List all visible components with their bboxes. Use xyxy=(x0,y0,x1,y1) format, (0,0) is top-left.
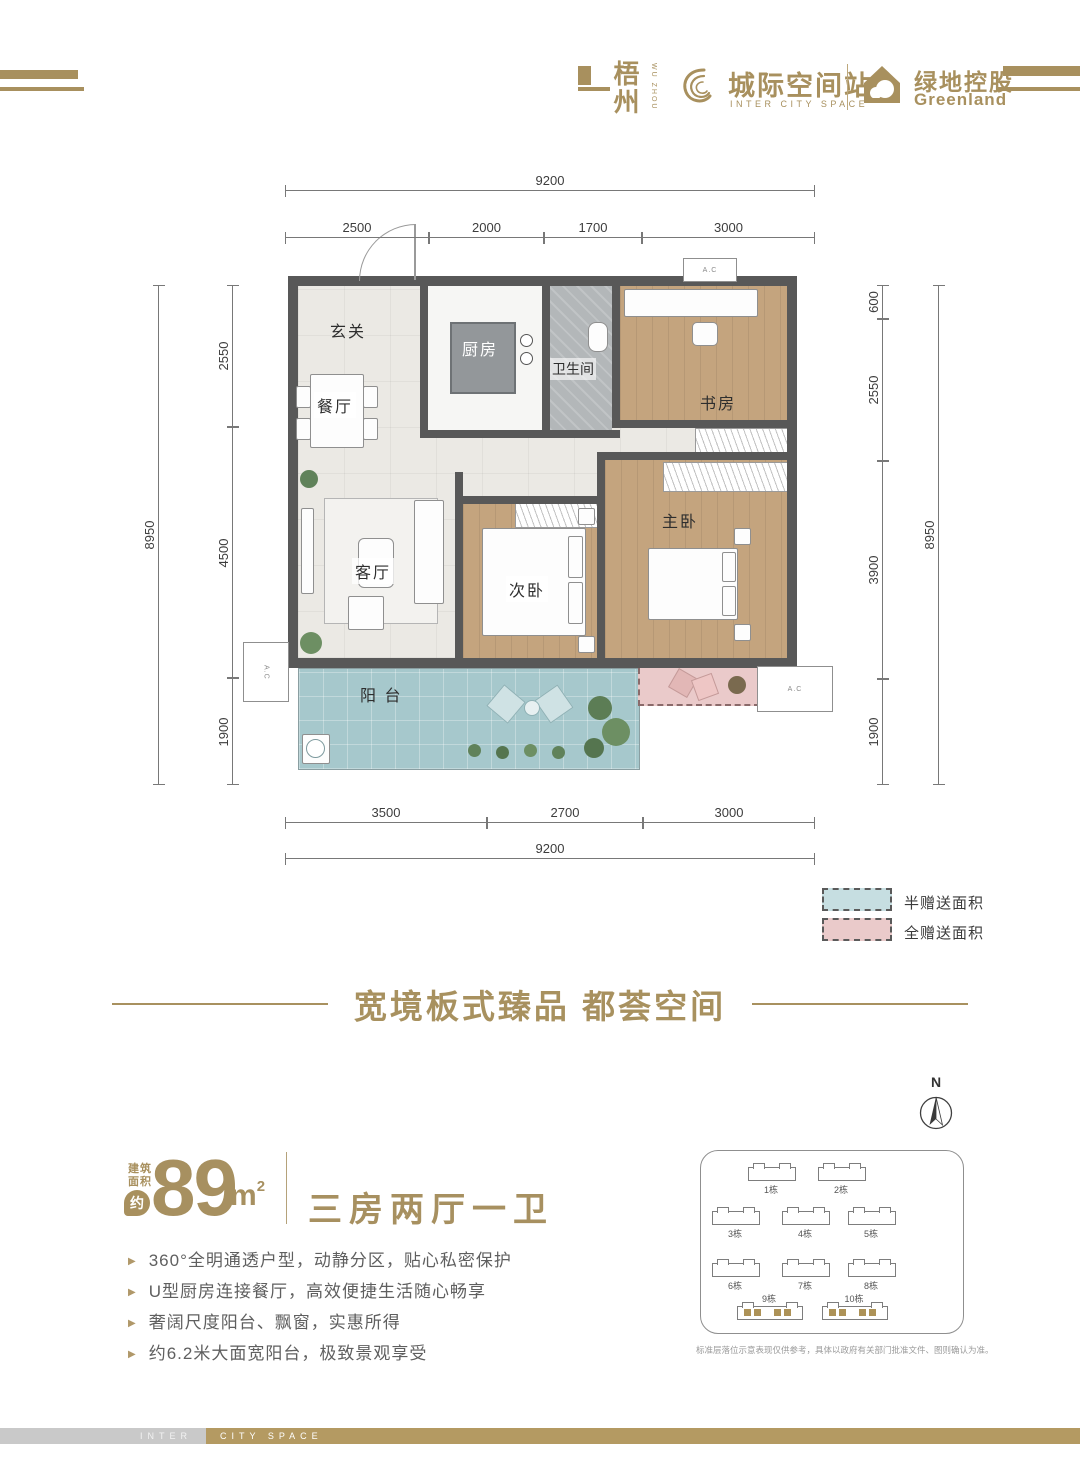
wall-study-bottom xyxy=(612,420,797,428)
wall-bed2-top xyxy=(463,496,605,504)
building-label: 1栋 xyxy=(748,1183,794,1196)
unit-divider xyxy=(286,1152,287,1224)
greenland-house-icon xyxy=(858,62,906,108)
wall-left xyxy=(288,276,298,668)
headline-text: 宽境板式臻品 都荟空间 xyxy=(354,980,726,1028)
feature-item: 360°全明通透户型，动静分区，贴心私密保护 xyxy=(128,1246,512,1271)
gift-unit-marker xyxy=(859,1309,866,1316)
gift-unit-marker xyxy=(744,1309,751,1316)
plant xyxy=(468,744,481,757)
deco-bar-right-thin xyxy=(997,87,1080,91)
header: 梧州 WU ZHOU 城际空间站 INTER CITY SPACE 绿地控股 G… xyxy=(0,0,1080,140)
city-logo: 梧州 xyxy=(611,60,643,122)
building-label: 2栋 xyxy=(818,1183,864,1196)
area-value: 89 xyxy=(151,1148,236,1228)
building-8 xyxy=(848,1263,896,1277)
unit-m: m xyxy=(230,1179,257,1212)
master-pillow xyxy=(722,552,736,582)
dim-top-total: 9200 xyxy=(285,190,815,191)
feature-item: U型厨房连接餐厅，高效便捷生活随心畅享 xyxy=(128,1277,486,1302)
dim-value: 3900 xyxy=(866,540,882,600)
dining-chair xyxy=(296,386,311,408)
dim-value: 1700 xyxy=(544,220,642,235)
dim-value: 3500 xyxy=(285,805,487,820)
wall-right xyxy=(787,276,797,668)
building-7 xyxy=(782,1263,830,1277)
ac-label: A.C xyxy=(703,267,718,274)
bed2-pillow xyxy=(568,536,583,578)
wall-bath-study xyxy=(612,286,620,428)
ac-label: A.C xyxy=(263,665,270,680)
deco-bar-left-thin xyxy=(0,87,84,91)
nightstand xyxy=(734,624,751,641)
wall-master-top xyxy=(605,452,797,460)
dim-value: 1900 xyxy=(866,702,882,762)
swirl-icon xyxy=(674,64,722,112)
building-label: 5栋 xyxy=(848,1227,894,1240)
dim-bottom-seg2: 2700 xyxy=(487,822,643,823)
building-label: 6栋 xyxy=(712,1279,758,1292)
dining-chair xyxy=(363,418,378,440)
ac-unit-right: A.C xyxy=(757,666,833,712)
headline-rule-left xyxy=(112,1003,328,1005)
building-label: 4栋 xyxy=(782,1227,828,1240)
dim-bottom-seg3: 3000 xyxy=(643,822,815,823)
headline-rule-right xyxy=(752,1003,968,1005)
building-4 xyxy=(782,1211,830,1225)
dining-chair xyxy=(363,386,378,408)
nightstand xyxy=(578,508,595,525)
building-label: 7栋 xyxy=(782,1279,828,1292)
wall-bed2-master xyxy=(597,452,605,668)
building-label: 8栋 xyxy=(848,1279,894,1292)
compass-icon xyxy=(916,1092,956,1132)
dim-value: 2700 xyxy=(487,805,643,820)
wall-living-bed2 xyxy=(455,472,463,668)
dim-top-seg1: 2500 xyxy=(285,237,429,238)
armchair xyxy=(348,596,384,630)
dining-chair xyxy=(296,418,311,440)
legend-swatch-full-gift xyxy=(822,918,892,941)
dim-left-seg3: 1900 xyxy=(232,678,233,785)
room-label-kitchen: 厨房 xyxy=(462,336,498,360)
room-label-foyer: 玄关 xyxy=(330,318,366,342)
gift-unit-marker xyxy=(754,1309,761,1316)
deco-block-prelogo xyxy=(578,66,591,85)
city-logo-sub: WU ZHOU xyxy=(645,63,657,123)
dim-value: 2500 xyxy=(285,220,429,235)
legend-label-full-gift: 全赠送面积 xyxy=(904,922,984,943)
plant xyxy=(602,718,630,746)
area-prefix-2: 面积 xyxy=(128,1173,152,1189)
dim-value: 2550 xyxy=(866,360,882,420)
balcony-table xyxy=(524,700,540,716)
room-label-study: 书房 xyxy=(700,390,736,414)
dim-top-seg2: 2000 xyxy=(429,237,544,238)
ac-unit-left: A.C xyxy=(243,642,289,702)
stove-burner xyxy=(520,334,533,347)
room-label-dining: 餐厅 xyxy=(314,392,356,418)
developer-sub: Greenland xyxy=(914,90,1007,110)
plant xyxy=(728,676,746,694)
plant xyxy=(584,738,604,758)
gift-unit-marker xyxy=(839,1309,846,1316)
gift-unit-marker xyxy=(784,1309,791,1316)
plant xyxy=(588,696,612,720)
legend-swatch-half-gift xyxy=(822,888,892,911)
room-label-bedroom2: 次卧 xyxy=(506,576,548,602)
unit-exp: 2 xyxy=(257,1178,265,1195)
footer-bar-right: CITY SPACE xyxy=(206,1428,1080,1444)
dim-right-seg4: 1900 xyxy=(882,679,883,785)
building-label: 3栋 xyxy=(712,1227,758,1240)
compass-north-label: N xyxy=(924,1074,948,1090)
dim-value: 3000 xyxy=(642,220,815,235)
layout-text: 三房两厅一卫 xyxy=(308,1182,554,1231)
dim-value: 2550 xyxy=(216,326,232,386)
dim-value: 1900 xyxy=(216,702,232,762)
dim-right-seg1: 600 xyxy=(882,285,883,319)
stove-burner xyxy=(520,352,533,365)
gift-unit-marker xyxy=(774,1309,781,1316)
study-desk xyxy=(624,289,758,317)
dim-right-total: 8950 xyxy=(938,285,939,785)
headline-row: 宽境板式臻品 都荟空间 xyxy=(112,982,968,1026)
dim-value: 4500 xyxy=(216,523,232,583)
wardrobe-hatch-2 xyxy=(663,462,789,492)
dim-top-seg4: 3000 xyxy=(642,237,815,238)
area-unit: m2 xyxy=(230,1178,265,1213)
brand-name: 城际空间站 xyxy=(728,64,873,103)
room-label-living: 客厅 xyxy=(352,558,394,584)
nightstand xyxy=(578,636,595,653)
dim-value: 600 xyxy=(866,272,882,332)
dim-left-seg1: 2550 xyxy=(232,285,233,427)
study-chair xyxy=(692,322,718,346)
legend-label-half-gift: 半赠送面积 xyxy=(904,892,984,913)
header-divider xyxy=(847,64,848,110)
ac-label: A.C xyxy=(788,686,803,693)
site-plan-disclaimer: 标准层落位示意表现仅供参考，具体以政府有关部门批准文件、图则确认为准。 xyxy=(696,1344,994,1356)
feature-item: 奢阔尺度阳台、飘窗，实惠所得 xyxy=(128,1308,401,1333)
master-pillow xyxy=(722,586,736,616)
building-10-highlighted xyxy=(822,1306,888,1320)
dim-right-seg2: 2550 xyxy=(882,319,883,461)
building-2 xyxy=(818,1167,866,1181)
deco-bar-right-thick xyxy=(1003,66,1080,76)
dim-bottom-total: 9200 xyxy=(285,858,815,859)
room-label-balcony: 阳 台 xyxy=(360,682,402,706)
dim-value: 2000 xyxy=(429,220,544,235)
room-label-master: 主卧 xyxy=(662,508,698,532)
feature-item: 约6.2米大面宽阳台，极致景观享受 xyxy=(128,1339,427,1364)
poster-page: 梧州 WU ZHOU 城际空间站 INTER CITY SPACE 绿地控股 G… xyxy=(0,0,1080,1466)
plant xyxy=(524,744,537,757)
building-3 xyxy=(712,1211,760,1225)
sofa xyxy=(414,500,444,604)
room-label-bath: 卫生间 xyxy=(550,358,596,380)
building-1 xyxy=(748,1167,796,1181)
gift-unit-marker xyxy=(829,1309,836,1316)
dim-value: 9200 xyxy=(285,173,815,188)
dim-value: 8950 xyxy=(922,505,938,565)
gift-unit-marker xyxy=(869,1309,876,1316)
wall-kitchen-bath xyxy=(542,286,550,438)
dim-left-seg2: 4500 xyxy=(232,427,233,678)
toilet xyxy=(588,322,608,352)
dim-value: 3000 xyxy=(643,805,815,820)
tv-cabinet xyxy=(301,508,314,594)
deco-bar-left-thick xyxy=(0,70,78,79)
dim-value: 8950 xyxy=(142,505,158,565)
nightstand xyxy=(734,528,751,545)
washer-drum xyxy=(306,739,325,758)
plant xyxy=(300,632,322,654)
building-5 xyxy=(848,1211,896,1225)
dim-value: 9200 xyxy=(285,841,815,856)
building-6 xyxy=(712,1263,760,1277)
bed2-pillow xyxy=(568,582,583,624)
wall-dining-kitchen xyxy=(420,286,428,438)
plant xyxy=(552,746,565,759)
plant xyxy=(300,470,318,488)
building-9-highlighted xyxy=(737,1306,803,1320)
plant xyxy=(496,746,509,759)
wall-bottom xyxy=(288,658,797,668)
dim-bottom-seg1: 3500 xyxy=(285,822,487,823)
dim-top-seg3: 1700 xyxy=(544,237,642,238)
dim-left-total: 8950 xyxy=(158,285,159,785)
ac-unit-top: A.C xyxy=(683,258,737,282)
approx-badge: 约 xyxy=(124,1190,150,1216)
wall-kitchen-bottom xyxy=(420,430,620,438)
footer-bar-left: INTER xyxy=(0,1428,206,1444)
dim-right-seg3: 3900 xyxy=(882,461,883,679)
